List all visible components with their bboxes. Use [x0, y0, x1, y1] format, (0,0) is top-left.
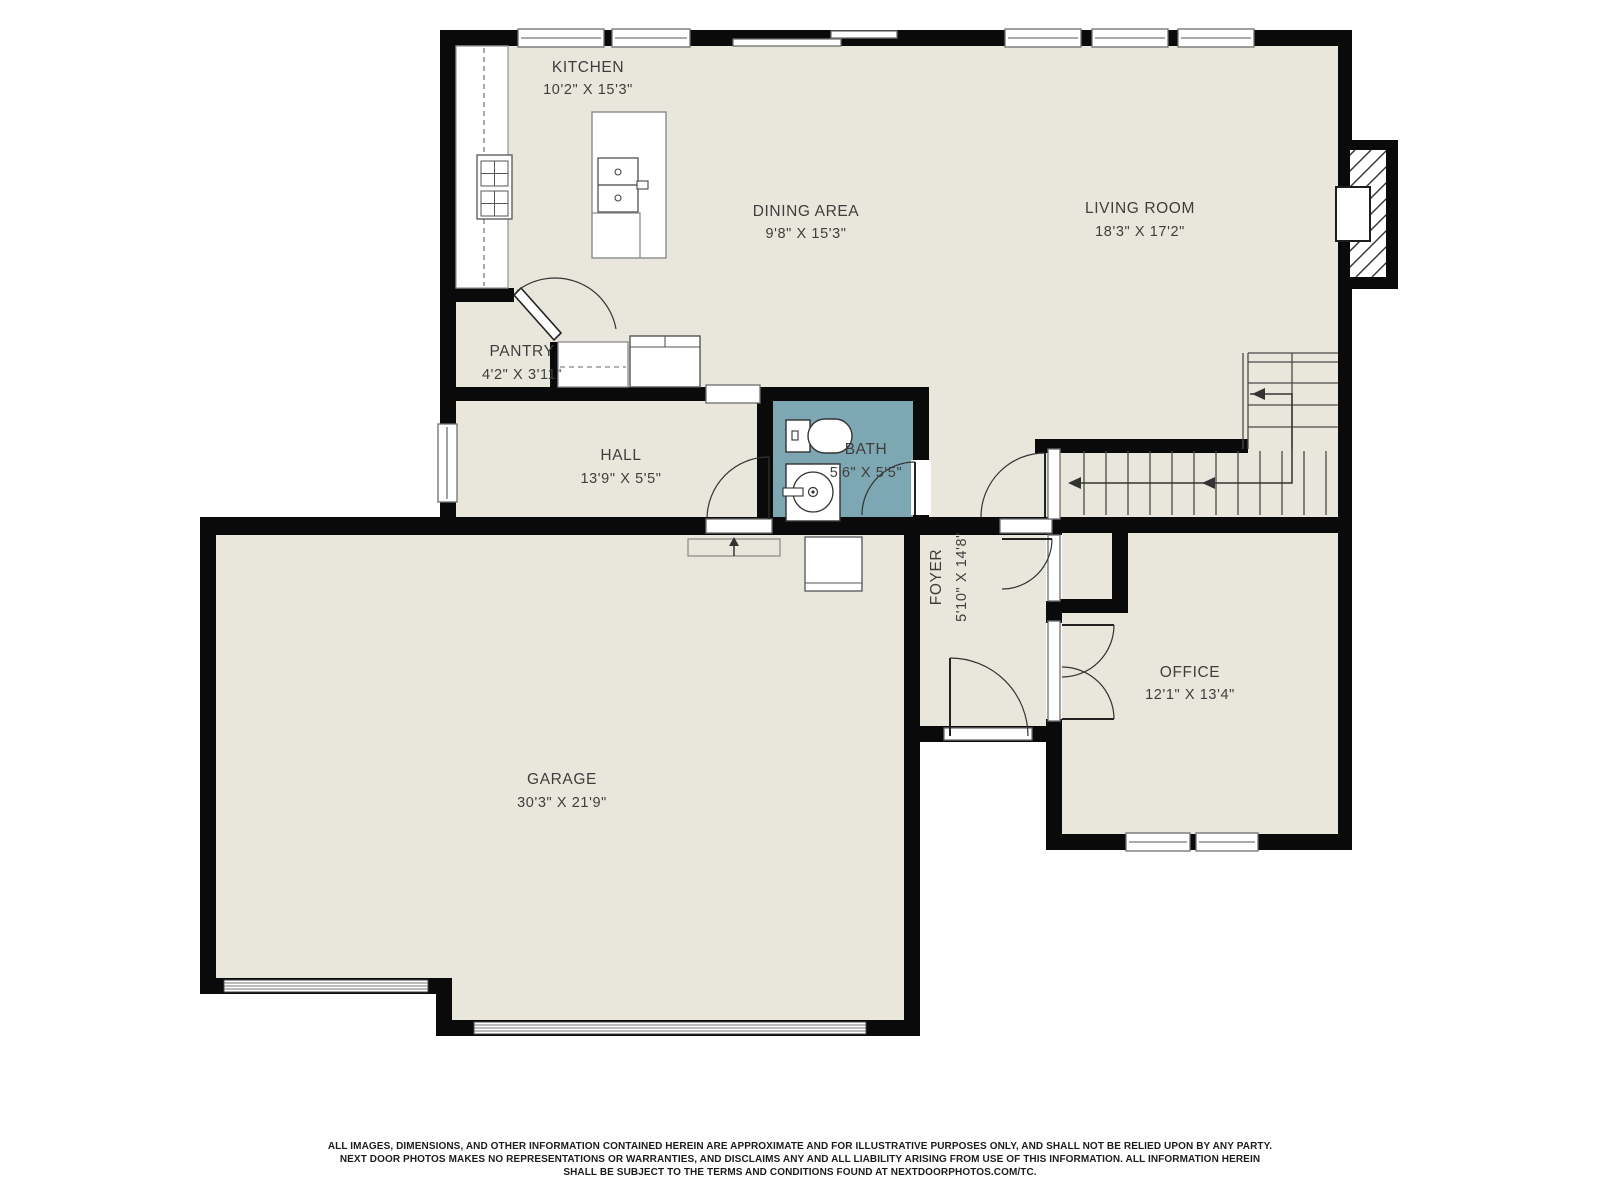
svg-text:OFFICE: OFFICE: [1160, 664, 1220, 681]
wall-garage-left: [200, 517, 216, 994]
disclaimer: ALL IMAGES, DIMENSIONS, AND OTHER INFORM…: [0, 1140, 1600, 1179]
sliding-door-panel-2: [831, 31, 897, 38]
opening-foyer: [1000, 519, 1052, 533]
stove-icon: [477, 155, 512, 219]
refrigerator-icon: [630, 336, 700, 387]
opening-office-doors: [1048, 621, 1060, 721]
wall-garage-right: [904, 517, 920, 1036]
svg-text:FOYER: FOYER: [928, 549, 945, 605]
wall-bath-left: [757, 387, 773, 535]
wall-foyer-right-a: [1046, 601, 1062, 623]
wall-pantry-top: [440, 288, 514, 302]
svg-text:12'1" X 13'4": 12'1" X 13'4": [1145, 687, 1235, 703]
opening-garage-entry: [706, 519, 772, 533]
floor-office: [1062, 533, 1338, 834]
floor-garage-step: [452, 978, 904, 1020]
floorplan-page: KITCHEN 10'2" X 15'3" DINING AREA 9'8" X…: [0, 0, 1600, 1200]
disclaimer-line-3: SHALL BE SUBJECT TO THE TERMS AND CONDIT…: [0, 1166, 1600, 1179]
disclaimer-line-2: NEXT DOOR PHOTOS MAKES NO REPRESENTATION…: [0, 1153, 1600, 1166]
svg-text:10'2" X 15'3": 10'2" X 15'3": [543, 82, 633, 98]
svg-text:4'2" X 3'11": 4'2" X 3'11": [482, 367, 562, 383]
svg-text:9'8" X 15'3": 9'8" X 15'3": [765, 226, 846, 242]
wall-hall-bottom: [200, 517, 1062, 535]
opening-kitchen-hall: [706, 385, 760, 403]
svg-text:5'6" X 5'5": 5'6" X 5'5": [830, 465, 902, 481]
svg-text:GARAGE: GARAGE: [527, 771, 597, 788]
svg-text:PANTRY: PANTRY: [489, 343, 554, 360]
front-door-sill: [944, 728, 1032, 740]
svg-text:LIVING ROOM: LIVING ROOM: [1085, 200, 1195, 217]
sliding-door-panel-1: [733, 39, 841, 46]
svg-text:HALL: HALL: [600, 447, 641, 464]
wall-hall-top: [440, 387, 929, 401]
svg-text:18'3" X 17'2": 18'3" X 17'2": [1095, 224, 1185, 240]
svg-text:5'10" X 14'8": 5'10" X 14'8": [954, 532, 970, 622]
water-heater-icon: [805, 537, 862, 591]
svg-text:30'3" X 21'9": 30'3" X 21'9": [517, 795, 607, 811]
opening-closet: [1048, 535, 1060, 601]
south-cabinet: [558, 342, 628, 387]
toilet-icon: [786, 419, 852, 453]
wall-office-top: [1035, 517, 1352, 533]
floor-garage: [216, 535, 904, 978]
svg-text:KITCHEN: KITCHEN: [552, 59, 624, 76]
floorplan-drawing: KITCHEN 10'2" X 15'3" DINING AREA 9'8" X…: [0, 0, 1600, 1200]
svg-text:BATH: BATH: [845, 441, 888, 458]
wall-foyer-right-b: [1046, 719, 1062, 742]
disclaimer-line-1: ALL IMAGES, DIMENSIONS, AND OTHER INFORM…: [0, 1140, 1600, 1153]
svg-text:13'9" X 5'5": 13'9" X 5'5": [580, 471, 661, 487]
svg-text:DINING AREA: DINING AREA: [753, 203, 860, 220]
firebox: [1336, 187, 1370, 241]
wall-closet-bottom: [1060, 599, 1128, 613]
wall-stair-stub: [1035, 439, 1248, 453]
opening-stairs-door: [1048, 449, 1060, 519]
wall-office-left: [1046, 742, 1062, 834]
kitchen-island: [592, 112, 666, 258]
